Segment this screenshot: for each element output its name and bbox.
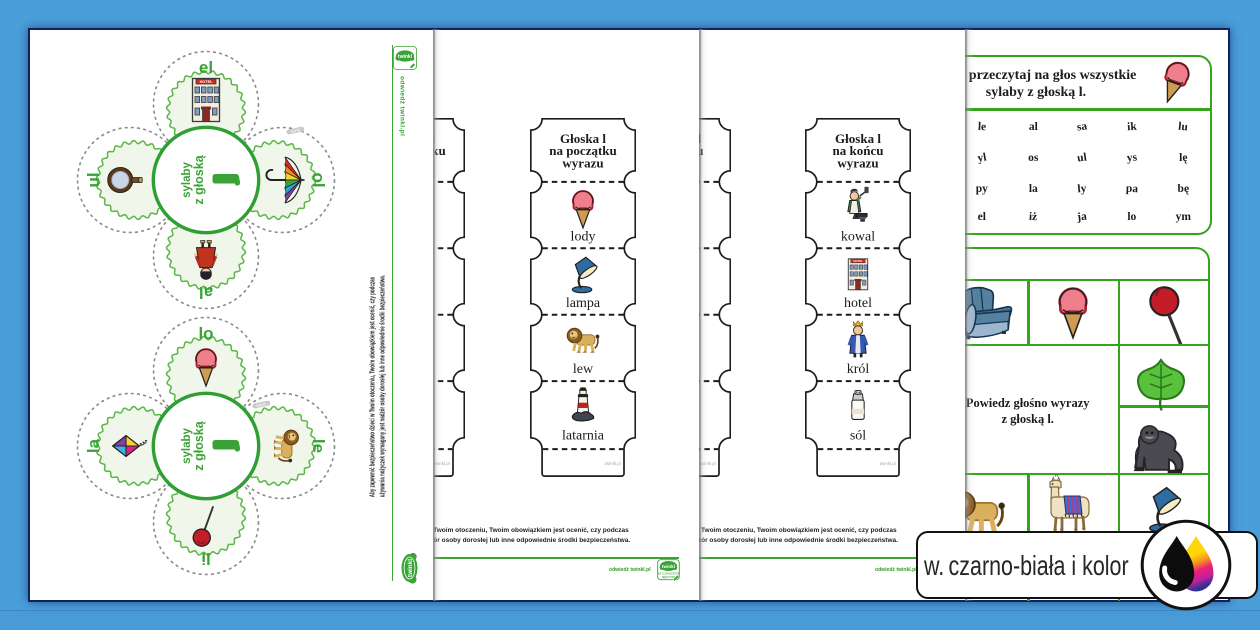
svg-text:lo: lo	[198, 324, 213, 343]
svg-text:al: al	[199, 283, 213, 302]
svg-text:le: le	[309, 439, 328, 453]
svg-text:hotel: hotel	[844, 296, 872, 311]
svg-text:li: li	[201, 549, 210, 568]
svg-text:la: la	[84, 438, 103, 453]
svg-text:król: król	[847, 362, 870, 377]
svg-text:lampa: lampa	[566, 296, 601, 311]
svg-text:z głoską: z głoską	[192, 420, 206, 470]
svg-text:ol: ol	[309, 173, 328, 188]
svg-text:approved: approved	[662, 575, 676, 579]
svg-text:z głoską: z głoską	[192, 155, 206, 205]
svg-text:latarnia: latarnia	[562, 429, 605, 444]
svg-text:el: el	[199, 58, 213, 77]
svg-text:kowal: kowal	[841, 229, 875, 244]
svg-text:HOTEL: HOTEL	[200, 80, 214, 84]
svg-text:lody: lody	[571, 229, 596, 244]
svg-text:ul: ul	[84, 173, 103, 188]
svg-text:twinkl: twinkl	[407, 559, 414, 577]
svg-text:wyrazu: wyrazu	[563, 156, 604, 171]
svg-text:twinkl.pl: twinkl.pl	[880, 461, 896, 466]
svg-text:twinkl.pl: twinkl.pl	[605, 461, 621, 466]
svg-text:twinkl: twinkl	[256, 401, 267, 408]
svg-text:lew: lew	[573, 362, 594, 377]
svg-text:twinkl: twinkl	[662, 564, 675, 569]
svg-text:HOTEL: HOTEL	[853, 259, 863, 263]
svg-text:twinkl: twinkl	[398, 54, 413, 60]
svg-text:sól: sól	[850, 429, 866, 444]
svg-text:twinkl: twinkl	[290, 127, 301, 134]
svg-text:wyrazu: wyrazu	[837, 156, 878, 171]
